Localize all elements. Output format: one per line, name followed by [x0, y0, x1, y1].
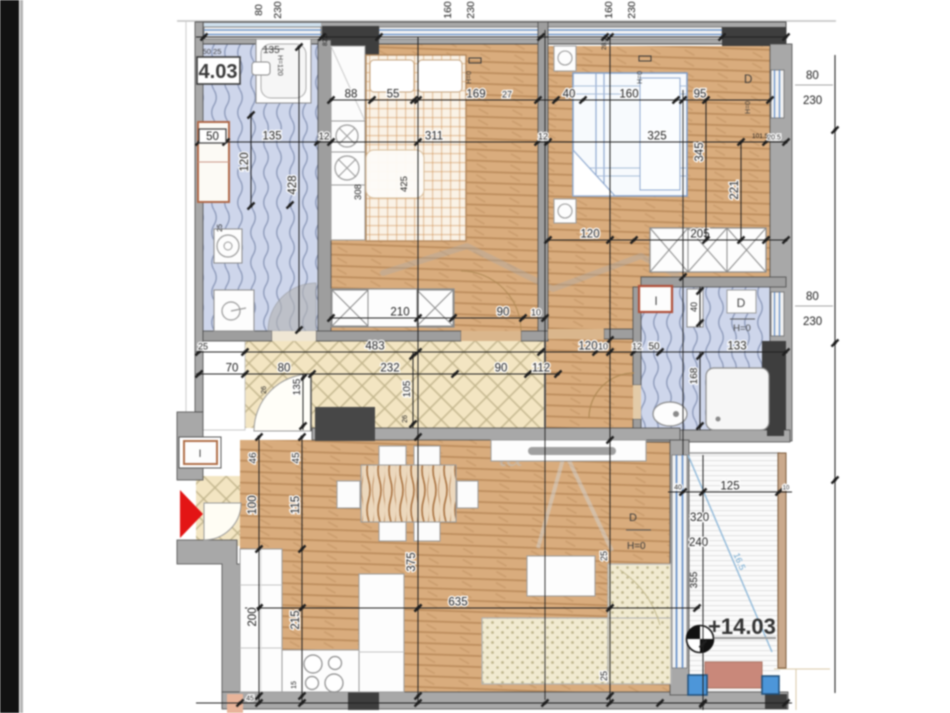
svg-text:230: 230	[626, 1, 638, 19]
svg-text:H=0: H=0	[466, 71, 473, 84]
svg-text:120: 120	[578, 341, 597, 353]
svg-text:D: D	[744, 74, 752, 86]
svg-text:20.5: 20.5	[767, 135, 781, 142]
svg-text:230: 230	[803, 95, 822, 107]
svg-text:H=0: H=0	[745, 101, 752, 114]
svg-text:355: 355	[689, 571, 700, 588]
svg-text:230: 230	[272, 1, 284, 19]
svg-text:40: 40	[689, 302, 699, 312]
svg-text:70: 70	[226, 363, 239, 375]
svg-text:135: 135	[292, 378, 303, 395]
svg-text:100: 100	[247, 495, 259, 514]
svg-text:I: I	[198, 448, 201, 460]
svg-text:240: 240	[689, 537, 708, 549]
svg-text:101.5: 101.5	[752, 133, 769, 140]
svg-text:12: 12	[632, 342, 642, 352]
svg-text:120: 120	[580, 229, 599, 241]
svg-text:27: 27	[502, 90, 512, 100]
svg-text:25: 25	[198, 342, 208, 352]
svg-text:168: 168	[689, 367, 700, 384]
svg-text:10: 10	[531, 308, 541, 318]
svg-text:50: 50	[648, 342, 660, 353]
svg-text:26: 26	[402, 415, 409, 423]
svg-text:308: 308	[353, 184, 364, 200]
svg-text:+14.03: +14.03	[708, 614, 776, 639]
svg-text:H=0: H=0	[627, 541, 646, 552]
svg-text:320: 320	[690, 512, 709, 524]
svg-text:10: 10	[783, 486, 790, 492]
svg-text:H=0: H=0	[733, 323, 751, 334]
svg-text:221: 221	[729, 180, 741, 199]
svg-text:50: 50	[206, 131, 219, 143]
svg-text:12: 12	[538, 132, 548, 142]
svg-text:160: 160	[603, 1, 615, 19]
svg-text:105: 105	[402, 380, 413, 397]
svg-text:483: 483	[365, 341, 384, 353]
svg-text:26: 26	[261, 386, 268, 394]
svg-text:210: 210	[390, 307, 409, 319]
svg-text:120: 120	[239, 152, 251, 171]
svg-text:4.03: 4.03	[199, 61, 238, 83]
svg-text:28.5: 28.5	[601, 37, 608, 50]
svg-text:200: 200	[247, 607, 259, 626]
svg-text:125: 125	[720, 481, 739, 493]
svg-text:428: 428	[287, 175, 299, 194]
svg-text:I: I	[654, 294, 657, 308]
svg-text:311: 311	[425, 131, 443, 143]
svg-text:160: 160	[442, 1, 454, 19]
svg-text:112: 112	[532, 363, 550, 375]
svg-text:12: 12	[318, 132, 330, 143]
svg-text:80: 80	[278, 363, 291, 375]
svg-text:80: 80	[806, 70, 819, 82]
svg-text:D: D	[737, 296, 746, 310]
svg-text:25: 25	[599, 671, 609, 681]
svg-text:40: 40	[674, 485, 682, 492]
svg-text:95: 95	[694, 89, 707, 101]
svg-text:D: D	[629, 512, 637, 524]
svg-text:10: 10	[598, 342, 608, 352]
svg-text:635: 635	[448, 597, 467, 609]
svg-text:133: 133	[727, 341, 746, 353]
svg-text:169: 169	[466, 89, 485, 101]
svg-text:15: 15	[291, 681, 298, 689]
svg-text:H=0: H=0	[637, 71, 644, 84]
svg-text:25: 25	[217, 224, 224, 232]
svg-text:40: 40	[563, 89, 576, 101]
svg-text:135: 135	[262, 131, 281, 143]
svg-text:425: 425	[399, 176, 410, 192]
svg-text:82.5: 82.5	[322, 33, 329, 46]
svg-text:50 25: 50 25	[203, 47, 222, 56]
svg-text:80: 80	[253, 4, 265, 16]
svg-text:230: 230	[465, 1, 477, 19]
svg-text:55: 55	[387, 89, 400, 101]
svg-text:80: 80	[806, 291, 819, 303]
svg-text:88: 88	[345, 89, 358, 101]
svg-text:45: 45	[291, 452, 302, 464]
svg-text:375: 375	[406, 552, 418, 571]
svg-text:230: 230	[803, 316, 822, 328]
svg-text:115: 115	[290, 496, 302, 514]
svg-text:325: 325	[647, 131, 666, 143]
svg-text:90: 90	[497, 307, 510, 319]
svg-text:215: 215	[290, 610, 302, 629]
svg-text:90: 90	[495, 363, 508, 375]
svg-text:232: 232	[380, 363, 399, 375]
svg-text:H=120: H=120	[276, 55, 283, 76]
svg-text:25: 25	[599, 551, 609, 561]
svg-text:345: 345	[694, 142, 706, 161]
svg-text:160: 160	[619, 89, 638, 101]
svg-text:45: 45	[246, 696, 254, 703]
svg-text:46: 46	[248, 452, 259, 464]
